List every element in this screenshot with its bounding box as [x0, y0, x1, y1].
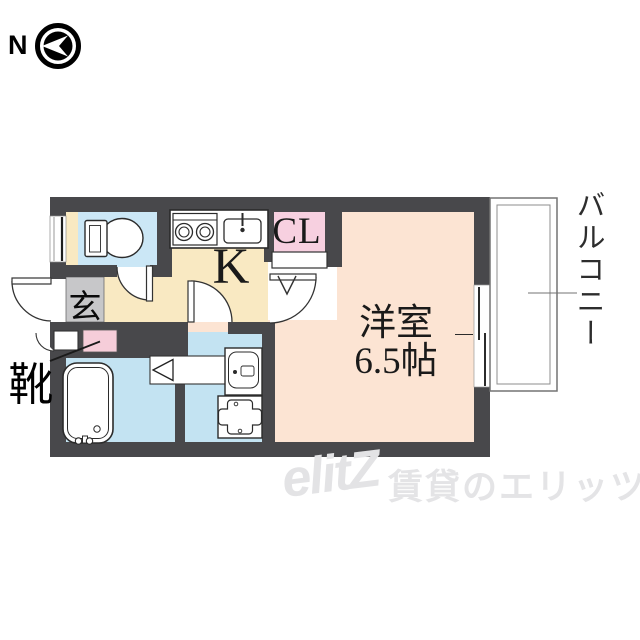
toilet-door-panel — [147, 266, 153, 301]
western-room-size: 6.5帖 — [326, 330, 466, 384]
wall-washroom-right — [262, 322, 275, 442]
bathtub-icon — [63, 363, 113, 444]
bathtub-outer — [63, 363, 113, 443]
wall-right-a — [474, 210, 490, 285]
entrance-door-panel — [12, 278, 51, 284]
washbasin-faucet — [241, 366, 254, 376]
wall-bath-washroom — [175, 384, 185, 442]
balcony-outline — [490, 198, 577, 391]
wall-right-b — [474, 387, 490, 444]
balcony-outer — [490, 198, 557, 391]
burner-left-icon — [176, 224, 193, 241]
room-door-panel — [270, 274, 316, 280]
balcony-label: バルコニー — [567, 190, 609, 400]
sink-faucet-dot — [240, 228, 244, 232]
closet-label: CL — [268, 210, 326, 253]
wall-bottom — [50, 442, 490, 457]
washbasin-drain — [233, 370, 237, 374]
compass-icon — [38, 26, 79, 67]
washbasin-icon — [225, 348, 262, 395]
shoe-storage-box — [83, 330, 117, 352]
bathtub-knob-right — [86, 438, 92, 444]
shoes-label: 靴 — [4, 348, 58, 413]
balcony-inner — [497, 205, 550, 384]
closet-folding-door — [272, 252, 327, 268]
wall-toilet-bottom-left — [60, 265, 117, 277]
bathtub-knob-left — [75, 438, 81, 444]
toilet-window — [50, 216, 66, 262]
washing-machine-icon — [218, 396, 262, 438]
washroom-door-panel — [188, 281, 194, 322]
wall-left-a — [50, 210, 66, 216]
watermark-text: 賃貸のエリッツ — [388, 459, 640, 510]
compass-north-label: N — [8, 30, 38, 61]
kitchen-label: K — [202, 238, 260, 296]
entrance-label: 玄 — [65, 280, 105, 328]
watermark-logo: elitZ — [279, 439, 382, 510]
floor-plan: N 玄 靴 K CL 洋室 6.5帖 バルコニー elitZ 賃貸のエリッツ — [0, 0, 640, 640]
toilet-icon — [85, 219, 143, 258]
wall-toilet-bottom-right — [150, 265, 172, 277]
toilet-tank-inner — [90, 226, 101, 253]
balcony-sliding-window — [474, 285, 490, 387]
